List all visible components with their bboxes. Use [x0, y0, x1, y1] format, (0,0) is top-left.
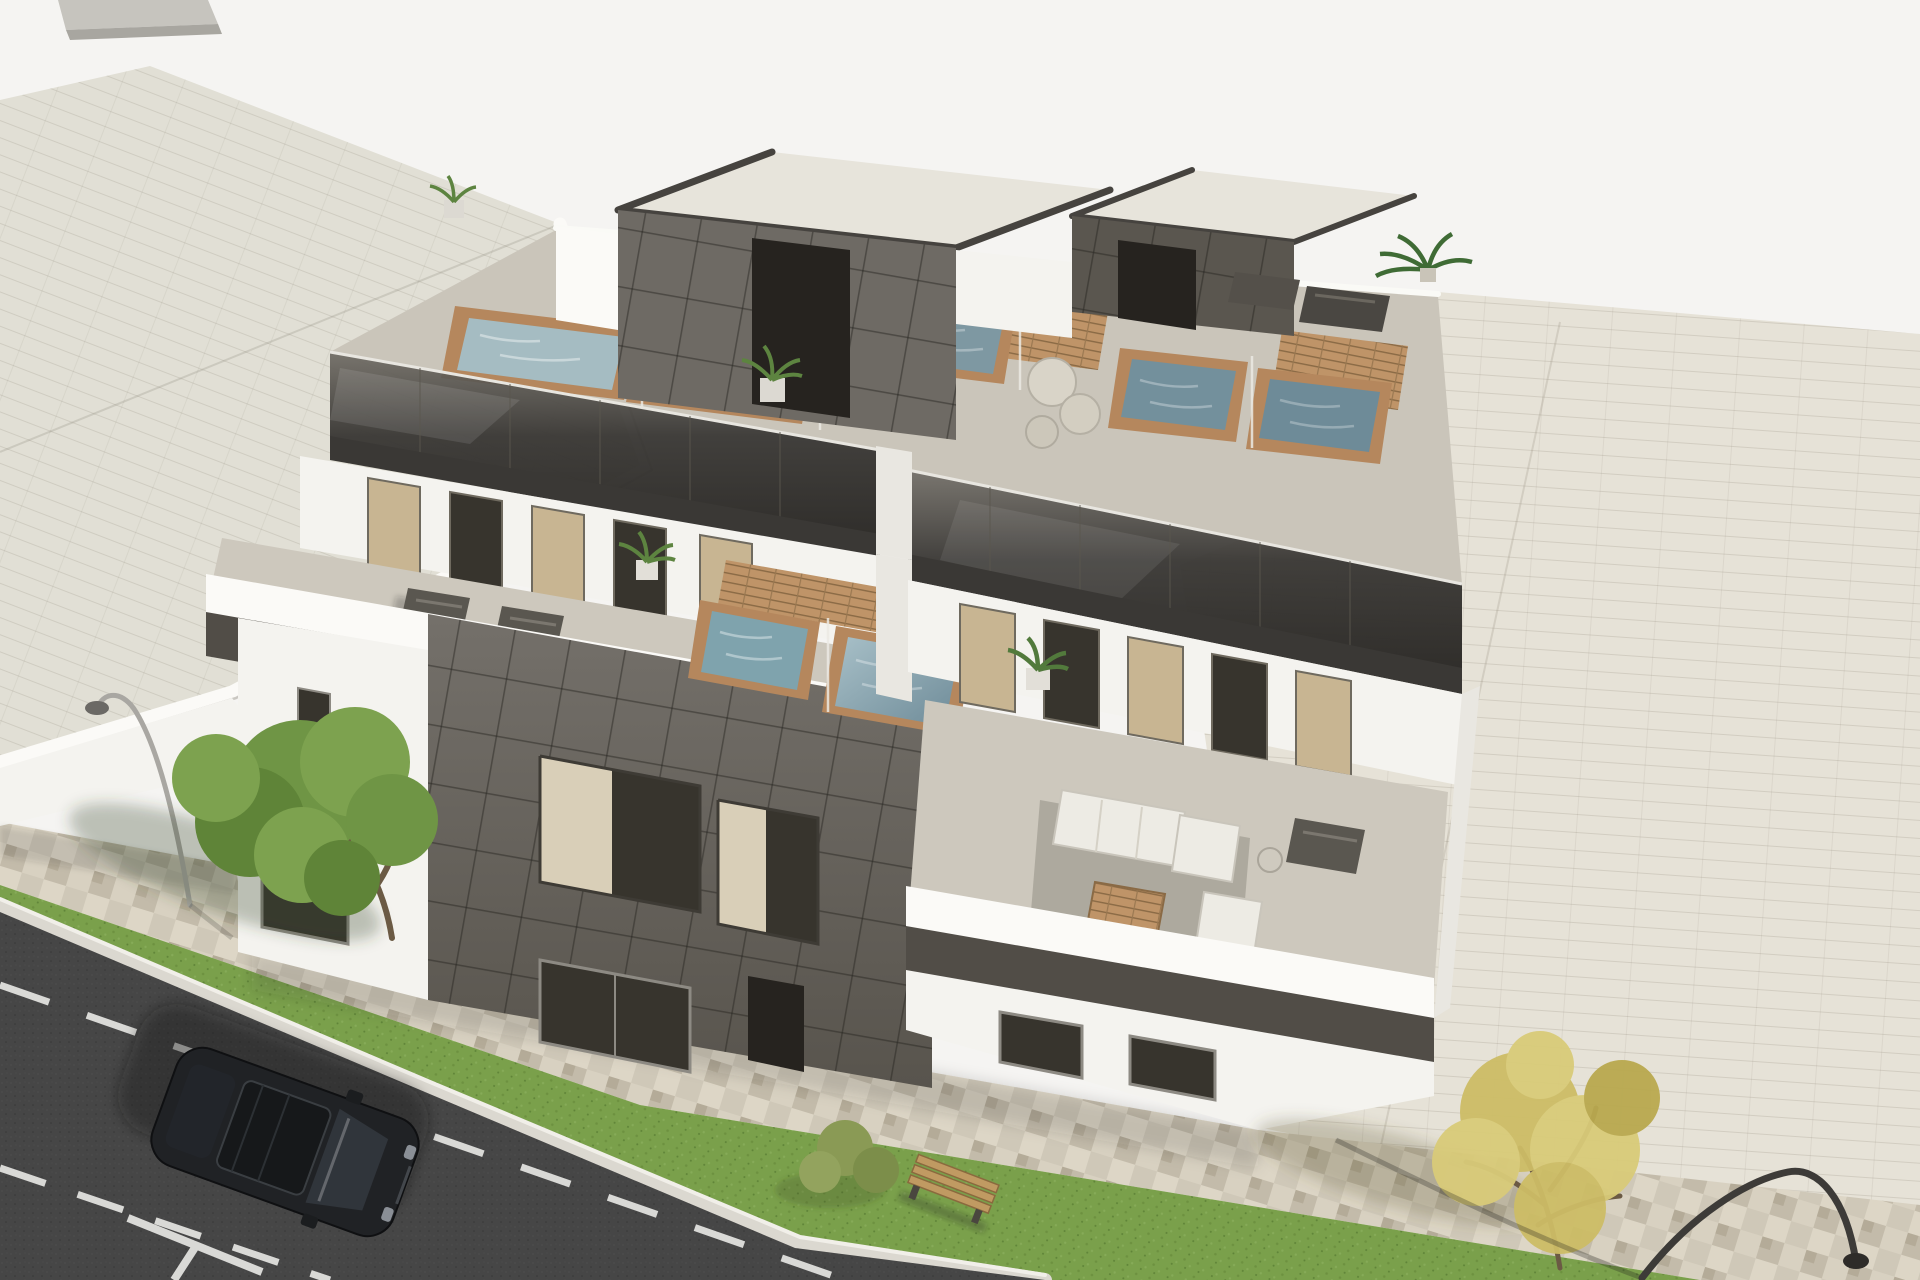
architectural-render: Aerial 3D architectural rendering of a m… [0, 0, 1920, 1280]
volume-door [748, 976, 804, 1072]
terrace-step-wall [876, 554, 912, 702]
rooftop-pool-5 [1246, 368, 1392, 464]
render-canvas: Aerial 3D architectural rendering of a m… [0, 0, 1920, 1280]
roof-bulkhead-right [956, 250, 1072, 338]
volume-upper-recess-right [718, 800, 818, 944]
penthouse-wing-door [1118, 240, 1196, 330]
roof-step-wall [876, 446, 912, 560]
roof-bulkhead-left [556, 226, 618, 330]
rooftop-pool-4 [1108, 348, 1248, 442]
